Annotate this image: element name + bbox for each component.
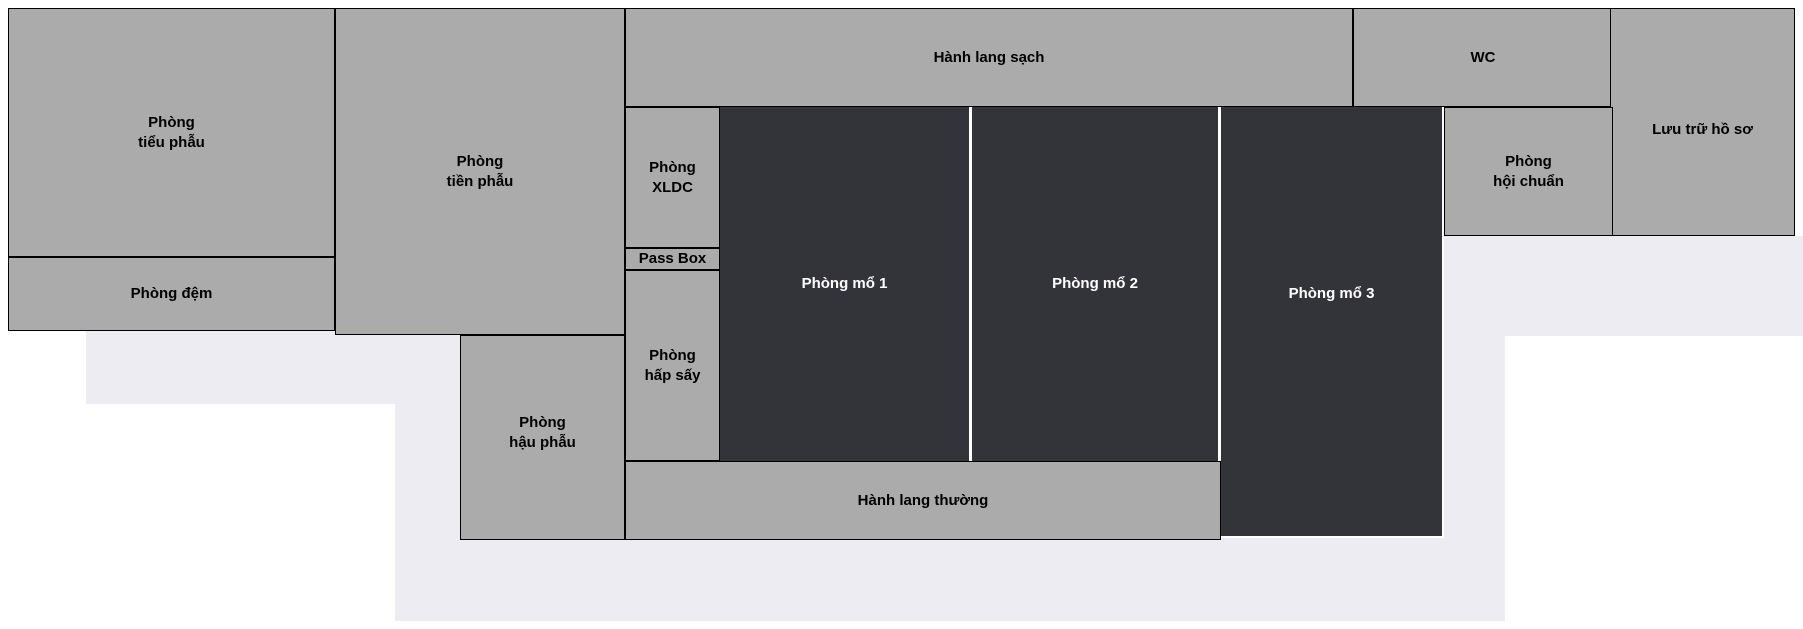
room-phong-tien-phau: Phòng tiền phẫu xyxy=(335,8,625,335)
room-phong-hap-say: Phòng hấp sấy xyxy=(625,270,720,461)
room-label-phong-tieu-phau: Phòng tiểu phẫu xyxy=(138,113,205,152)
room-label-hanh-lang-thuong: Hành lang thường xyxy=(858,491,989,511)
room-label-phong-hoi-chuan: Phòng hội chuẩn xyxy=(1493,152,1564,191)
room-luu-tru-ho-so: Lưu trữ hồ sơ xyxy=(1610,8,1795,236)
room-label-phong-mo-2: Phòng mổ 2 xyxy=(1052,274,1138,294)
backdrop-shape-1 xyxy=(86,331,460,404)
room-hanh-lang-thuong: Hành lang thường xyxy=(625,461,1221,540)
room-phong-tieu-phau: Phòng tiểu phẫu xyxy=(8,8,335,257)
room-label-phong-hap-say: Phòng hấp sấy xyxy=(645,346,701,385)
room-phong-dem: Phòng đệm xyxy=(8,257,335,331)
backdrop-shape-4 xyxy=(1444,336,1505,404)
room-label-phong-mo-1: Phòng mổ 1 xyxy=(802,274,888,294)
floor-plan-canvas: Phòng tiểu phẫuPhòng đệmPhòng tiền phẫuP… xyxy=(0,0,1803,629)
room-label-phong-mo-3: Phòng mổ 3 xyxy=(1289,284,1375,304)
room-label-pass-box: Pass Box xyxy=(639,249,707,269)
room-phong-xldc: Phòng XLDC xyxy=(625,107,720,248)
room-label-wc: WC xyxy=(1471,48,1496,68)
backdrop-shape-3 xyxy=(1444,236,1803,336)
room-phong-hau-phau: Phòng hậu phẫu xyxy=(460,335,625,540)
room-pass-box: Pass Box xyxy=(625,248,720,270)
operating-room-divider-1 xyxy=(969,107,972,461)
operating-room-divider-2 xyxy=(1218,107,1221,461)
room-phong-mo-3: Phòng mổ 3 xyxy=(1221,107,1444,538)
room-label-hanh-lang-sach: Hành lang sạch xyxy=(934,48,1045,68)
room-phong-mo-1: Phòng mổ 1 xyxy=(720,107,969,461)
room-phong-mo-2: Phòng mổ 2 xyxy=(972,107,1218,461)
room-phong-hoi-chuan: Phòng hội chuẩn xyxy=(1444,107,1613,236)
room-label-phong-dem: Phòng đệm xyxy=(131,284,213,304)
room-label-phong-tien-phau: Phòng tiền phẫu xyxy=(447,152,514,191)
room-wc: WC xyxy=(1353,8,1613,107)
room-label-phong-xldc: Phòng XLDC xyxy=(649,158,696,197)
room-hanh-lang-sach: Hành lang sạch xyxy=(625,8,1353,107)
room-label-phong-hau-phau: Phòng hậu phẫu xyxy=(509,413,576,452)
room-label-luu-tru-ho-so: Lưu trữ hồ sơ xyxy=(1652,120,1753,140)
